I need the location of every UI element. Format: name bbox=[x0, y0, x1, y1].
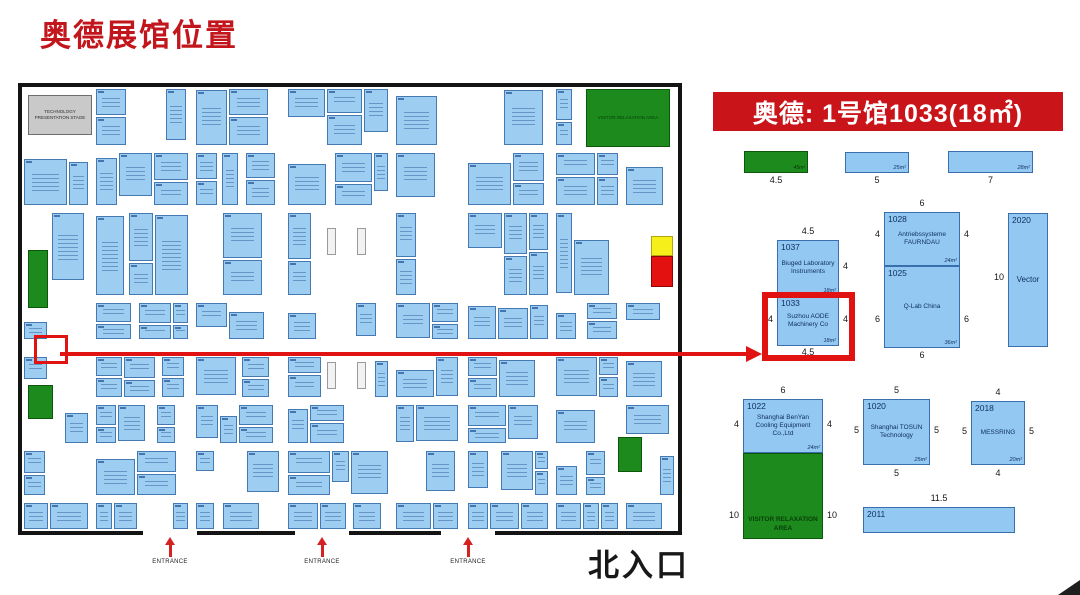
floor-booth bbox=[229, 117, 268, 145]
highlight-connector-line bbox=[60, 352, 748, 356]
booth-name: MESSRING bbox=[974, 429, 1022, 437]
dim-label: 10 bbox=[721, 510, 739, 520]
floor-booth bbox=[374, 153, 388, 191]
floor-booth bbox=[96, 216, 124, 295]
floor-booth bbox=[139, 325, 171, 339]
floor-booth bbox=[288, 261, 311, 295]
floor-booth bbox=[65, 413, 88, 443]
dim-label: 7 bbox=[948, 175, 1033, 185]
floor-booth bbox=[396, 153, 435, 197]
page-title: 奥德展馆位置 bbox=[40, 10, 238, 55]
floor-booth bbox=[396, 213, 416, 257]
pillar bbox=[357, 228, 366, 255]
dim-label: 4 bbox=[964, 229, 969, 239]
floor-booth bbox=[601, 503, 618, 529]
entrance-gap bbox=[295, 529, 349, 537]
floor-booth bbox=[162, 357, 184, 376]
floor-booth bbox=[173, 303, 188, 323]
floor-booth bbox=[154, 182, 188, 205]
booth-name: Shanghai TOSUN Technology bbox=[866, 424, 927, 440]
booth-id: 1025 bbox=[888, 268, 907, 278]
entrance-label: ENTRANCE bbox=[143, 559, 197, 565]
floor-booth bbox=[96, 503, 112, 529]
floor-booth bbox=[426, 451, 455, 491]
floor-booth bbox=[583, 503, 599, 529]
pillar bbox=[327, 362, 336, 389]
booth-id: 2018 bbox=[975, 403, 994, 413]
floor-booth bbox=[196, 303, 227, 327]
floor-booth bbox=[556, 89, 572, 120]
entrance-marker-3: ENTRANCE bbox=[441, 537, 495, 565]
floor-booth bbox=[556, 313, 576, 339]
dim-label: 4 bbox=[843, 261, 848, 271]
area-label: 36m² bbox=[944, 340, 957, 346]
floor-booth bbox=[96, 89, 126, 115]
floor-booth bbox=[504, 256, 527, 295]
detail-booth-slice: 28m² bbox=[948, 151, 1033, 173]
floor-booth bbox=[50, 503, 88, 529]
floor-booth bbox=[556, 357, 597, 396]
floor-booth bbox=[468, 503, 488, 529]
floor-booth bbox=[139, 303, 171, 323]
floor-booth bbox=[247, 451, 279, 492]
dim-label: 5 bbox=[845, 425, 859, 435]
floor-booth bbox=[239, 405, 273, 425]
slide: 奥德展馆位置 TECHNOLOGY PRESENTATION STAGE VIS… bbox=[0, 0, 1080, 595]
floor-booth bbox=[396, 405, 414, 442]
floor-booth bbox=[196, 181, 217, 205]
floor-booth bbox=[416, 405, 458, 441]
floor-booth bbox=[468, 405, 506, 426]
dim-label: 6 bbox=[743, 385, 823, 395]
red-area bbox=[651, 256, 673, 287]
floor-booth bbox=[535, 471, 548, 495]
floor-booth bbox=[597, 177, 618, 205]
floor-booth bbox=[196, 153, 217, 179]
floor-booth bbox=[335, 153, 372, 182]
floor-booth bbox=[288, 357, 321, 373]
floor-booth bbox=[288, 409, 308, 443]
floor-booth bbox=[223, 260, 262, 295]
dim-label: 4 bbox=[827, 419, 832, 429]
floor-booth bbox=[288, 503, 318, 529]
floor-booth bbox=[468, 213, 502, 248]
entrance-marker-2: ENTRANCE bbox=[295, 537, 349, 565]
north-entrance-label: 北入口 bbox=[588, 540, 690, 585]
floor-booth bbox=[597, 153, 618, 175]
booth-id: 1028 bbox=[888, 214, 907, 224]
dim-label: 6 bbox=[884, 350, 960, 360]
floor-booth bbox=[356, 303, 376, 336]
floor-booth bbox=[196, 90, 227, 145]
dim-label: 4 bbox=[725, 419, 739, 429]
floor-booth bbox=[157, 405, 175, 425]
floor-booth bbox=[626, 303, 660, 320]
map-highlight-box bbox=[34, 335, 68, 364]
floor-booth bbox=[96, 117, 126, 145]
floor-booth bbox=[96, 459, 135, 495]
detail-booth-slice: 25m² bbox=[845, 152, 909, 173]
pillar bbox=[327, 228, 336, 255]
floor-booth bbox=[504, 90, 543, 145]
floor-booth bbox=[508, 405, 538, 439]
booth-id: 1037 bbox=[781, 242, 800, 252]
dim-label: 4 bbox=[866, 229, 880, 239]
floor-booth bbox=[239, 427, 273, 443]
floor-booth bbox=[660, 456, 674, 495]
floor-booth bbox=[229, 312, 264, 339]
floor-booth bbox=[504, 213, 527, 254]
floor-booth bbox=[24, 475, 45, 495]
floor-plan: TECHNOLOGY PRESENTATION STAGE VISITOR RE… bbox=[18, 83, 682, 535]
floor-booth bbox=[320, 503, 346, 529]
floor-booth bbox=[499, 360, 535, 397]
area-label: 20m² bbox=[1009, 457, 1022, 463]
floor-booth bbox=[586, 451, 605, 475]
floor-booth bbox=[468, 357, 497, 376]
floor-booth bbox=[433, 503, 458, 529]
floor-booth bbox=[154, 153, 188, 180]
floor-booth bbox=[96, 357, 122, 376]
floor-booth bbox=[556, 122, 572, 145]
dim-label: 10 bbox=[827, 510, 837, 520]
booth-1025: 1025 Q-Lab China 36m² bbox=[884, 266, 960, 348]
visitor-relaxation-area-map: VISITOR RELAXATION AREA bbox=[586, 89, 670, 147]
floor-booth bbox=[468, 163, 511, 205]
floor-booth bbox=[173, 503, 188, 529]
dim-label: 5 bbox=[863, 468, 930, 478]
floor-booth bbox=[468, 378, 497, 397]
floor-booth bbox=[288, 451, 330, 473]
floor-booth bbox=[396, 370, 434, 397]
floor-booth bbox=[574, 240, 609, 295]
floor-booth bbox=[396, 96, 437, 145]
floor-booth bbox=[96, 405, 116, 425]
green-area-left-lower bbox=[28, 385, 53, 419]
floor-booth bbox=[556, 466, 577, 495]
booth-1037: 1037 Biuged Laboratory Instruments 18m² bbox=[777, 240, 839, 296]
floor-booth bbox=[335, 184, 372, 205]
floor-booth bbox=[432, 303, 458, 322]
dim-label: 4 bbox=[971, 468, 1025, 478]
area-label: 45m² bbox=[794, 165, 805, 171]
floor-booth bbox=[166, 89, 186, 140]
floor-booth bbox=[396, 259, 416, 295]
floor-booth bbox=[24, 503, 48, 529]
floor-booth bbox=[327, 115, 362, 145]
floor-booth bbox=[556, 153, 595, 175]
floor-booth bbox=[288, 475, 330, 495]
entrance-arrow-icon bbox=[165, 537, 175, 545]
dim-label: 6 bbox=[964, 314, 969, 324]
floor-booth bbox=[229, 89, 268, 115]
floor-booth bbox=[468, 451, 488, 488]
floor-booth bbox=[96, 324, 131, 339]
floor-booth bbox=[137, 474, 176, 495]
area-label: 25m² bbox=[893, 165, 906, 171]
booth-id: 1020 bbox=[867, 401, 886, 411]
floor-booth bbox=[246, 153, 275, 178]
booth-1020: 1020 Shanghai TOSUN Technology 25m² bbox=[863, 399, 930, 465]
technology-presentation-stage: TECHNOLOGY PRESENTATION STAGE bbox=[28, 95, 92, 135]
floor-booth bbox=[626, 167, 663, 205]
highlight-arrow-icon bbox=[746, 346, 762, 362]
area-label: 28m² bbox=[1017, 165, 1030, 171]
visitor-relaxation-area-detail: VISITOR RELAXATION AREA bbox=[743, 453, 823, 539]
floor-booth bbox=[196, 357, 236, 395]
floor-booth bbox=[157, 427, 175, 443]
dim-label: 6 bbox=[866, 314, 880, 324]
dim-label: 4.5 bbox=[744, 175, 808, 185]
floor-booth bbox=[96, 303, 131, 322]
floor-booth bbox=[513, 183, 544, 205]
floor-booth bbox=[69, 162, 88, 205]
floor-booth bbox=[196, 503, 214, 529]
floor-booth bbox=[599, 377, 618, 397]
floor-booth bbox=[396, 503, 431, 529]
detail-highlight-frame bbox=[762, 292, 855, 361]
dim-label: 5 bbox=[863, 385, 930, 395]
floor-booth bbox=[288, 375, 321, 397]
floor-booth bbox=[521, 503, 548, 529]
floor-booth bbox=[468, 306, 496, 339]
floor-booth bbox=[364, 89, 388, 132]
booth-name: Q-Lab China bbox=[887, 303, 957, 311]
floor-booth bbox=[396, 303, 430, 338]
entrance-label: ENTRANCE bbox=[441, 559, 495, 565]
entrance-marker-1: ENTRANCE bbox=[143, 537, 197, 565]
pillar bbox=[357, 362, 366, 389]
floor-booth bbox=[327, 89, 362, 113]
floor-booth bbox=[626, 361, 662, 397]
green-area-bottom-right bbox=[618, 437, 642, 472]
floor-booth bbox=[24, 159, 67, 205]
dim-label: 4.5 bbox=[777, 226, 839, 236]
floor-booth bbox=[96, 158, 117, 205]
floor-booth bbox=[351, 451, 388, 494]
floor-booth bbox=[556, 213, 572, 293]
dim-label: 5 bbox=[953, 426, 967, 436]
floor-booth bbox=[124, 380, 155, 397]
floor-booth bbox=[353, 503, 381, 529]
floor-booth bbox=[556, 177, 595, 205]
area-label: 24m² bbox=[807, 445, 820, 451]
floor-booth bbox=[223, 503, 259, 529]
booth-1022: 1022 Shanghai BenYan Cooling Equipment C… bbox=[743, 399, 823, 453]
dim-label: 5 bbox=[934, 425, 939, 435]
entrance-label: ENTRANCE bbox=[295, 559, 349, 565]
floor-booth bbox=[118, 405, 145, 441]
floor-booth bbox=[556, 503, 581, 529]
entrance-arrow-icon bbox=[463, 537, 473, 545]
floor-booth bbox=[288, 213, 311, 259]
floor-booth bbox=[96, 378, 122, 397]
floor-booth bbox=[119, 153, 152, 196]
detail-green-slice: 45m² bbox=[744, 151, 808, 173]
floor-booth bbox=[96, 427, 116, 443]
booth-id: 2020 bbox=[1012, 215, 1031, 225]
dim-label: 6 bbox=[884, 198, 960, 208]
visitor-area-label: VISITOR RELAXATION AREA bbox=[746, 516, 820, 533]
floor-booth bbox=[222, 153, 238, 205]
booth-2020: 2020 Vector bbox=[1008, 213, 1048, 347]
booth-2011: 2011 bbox=[863, 507, 1015, 533]
floor-booth bbox=[501, 451, 533, 490]
entrance-gap bbox=[441, 529, 495, 537]
floor-booth bbox=[137, 451, 176, 472]
floor-booth bbox=[626, 405, 669, 434]
floor-booth bbox=[129, 263, 153, 295]
floor-booth bbox=[586, 477, 605, 495]
dim-label: 11.5 bbox=[863, 493, 1015, 503]
floor-booth bbox=[529, 213, 548, 250]
floor-booth bbox=[535, 451, 548, 469]
dim-label: 4 bbox=[971, 387, 1025, 397]
floor-booth bbox=[513, 153, 544, 181]
dim-label: 10 bbox=[986, 272, 1004, 282]
floor-booth bbox=[498, 308, 528, 339]
floor-booth bbox=[162, 378, 184, 397]
booth-2018: 2018 MESSRING 20m² bbox=[971, 401, 1025, 465]
page-corner-mark bbox=[1058, 580, 1080, 595]
floor-booth bbox=[220, 416, 237, 443]
floor-booth bbox=[155, 215, 188, 295]
floor-booth bbox=[436, 357, 458, 396]
floor-booth bbox=[242, 357, 269, 377]
floor-booth bbox=[529, 252, 548, 295]
floor-booth bbox=[587, 303, 617, 319]
entrance-arrow-icon bbox=[317, 537, 327, 545]
floor-booth bbox=[246, 180, 275, 205]
booth-1028: 1028 Antriebssysteme FAURNDAU 24m² bbox=[884, 212, 960, 266]
floor-booth bbox=[196, 451, 214, 471]
green-area-left-upper bbox=[28, 250, 48, 308]
floor-booth bbox=[196, 405, 218, 438]
floor-booth bbox=[288, 164, 326, 205]
booth-name: Antriebssysteme FAURNDAU bbox=[887, 231, 957, 247]
floor-booth bbox=[626, 503, 662, 529]
floor-booth bbox=[310, 423, 344, 443]
floor-booth bbox=[468, 428, 506, 443]
floor-booth bbox=[310, 405, 344, 421]
entrance-gap bbox=[143, 529, 197, 537]
floor-booth bbox=[52, 213, 84, 280]
booth-location-banner: 奥德: 1号馆1033(18㎡) bbox=[713, 92, 1063, 131]
booth-id: 1022 bbox=[747, 401, 766, 411]
floor-booth bbox=[587, 321, 617, 339]
booth-name: Shanghai BenYan Cooling Equipment Co.,Lt… bbox=[746, 414, 820, 438]
floor-booth bbox=[288, 89, 325, 117]
floor-booth bbox=[114, 503, 137, 529]
floor-booth bbox=[173, 325, 188, 339]
floor-booth bbox=[223, 213, 262, 258]
floor-booth bbox=[124, 357, 155, 378]
booth-name: Vector bbox=[1011, 275, 1045, 285]
floor-booth bbox=[24, 451, 45, 473]
floor-booth bbox=[332, 451, 349, 482]
booth-name: Biuged Laboratory Instruments bbox=[780, 260, 836, 276]
floor-booth bbox=[288, 313, 316, 339]
floor-booth bbox=[599, 357, 618, 375]
dim-label: 5 bbox=[1029, 426, 1034, 436]
floor-booth bbox=[556, 410, 595, 443]
floor-booth bbox=[530, 305, 548, 339]
area-label: 24m² bbox=[944, 258, 957, 264]
dim-label: 5 bbox=[845, 175, 909, 185]
floor-booth bbox=[490, 503, 519, 529]
floor-booth bbox=[242, 379, 269, 397]
area-label: 25m² bbox=[914, 457, 927, 463]
yellow-area bbox=[651, 236, 673, 256]
floor-booth bbox=[432, 324, 458, 339]
floor-booth bbox=[375, 361, 388, 397]
booth-id: 2011 bbox=[867, 509, 885, 519]
floor-booth bbox=[129, 213, 153, 261]
